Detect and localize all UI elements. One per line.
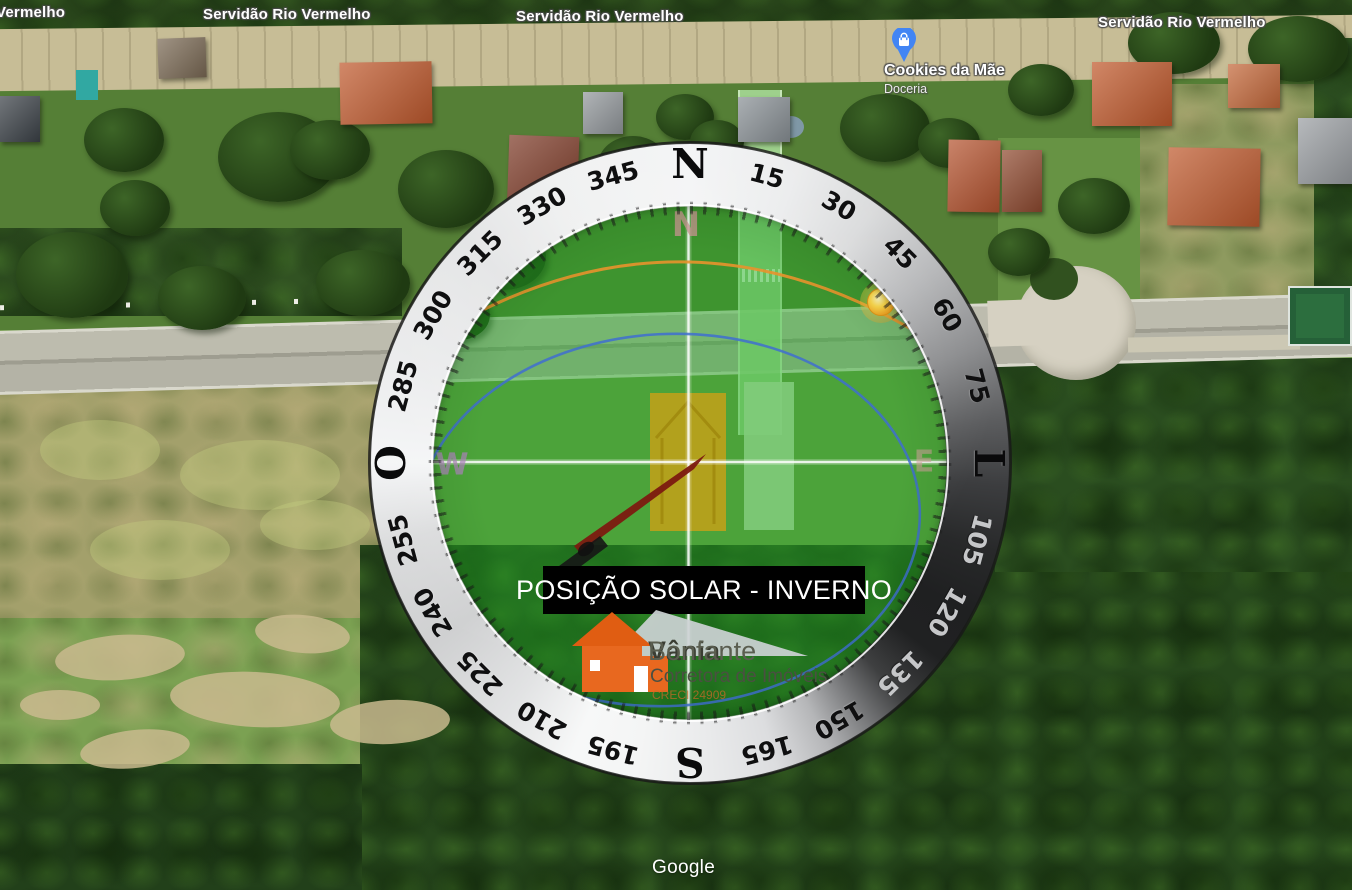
solar-compass-overlay: NWE N1530456075L105120135150165S19521022… bbox=[0, 0, 1352, 890]
logo-surname: Bonfante bbox=[648, 636, 756, 667]
poi-category: Doceria bbox=[884, 82, 927, 96]
logo-license: CRECI 24909 bbox=[652, 688, 726, 702]
poi-name[interactable]: Cookies da Mãe bbox=[884, 62, 1005, 80]
screenshot-root: VermelhoServidão Rio VermelhoServidão Ri… bbox=[0, 0, 1352, 890]
brand-logo: Vânia Bonfante Corretora de Imóveis CREC… bbox=[560, 598, 860, 718]
poi-pin-icon[interactable] bbox=[890, 28, 918, 64]
google-attribution[interactable]: Google bbox=[652, 857, 715, 879]
logo-tagline: Corretora de Imóveis bbox=[650, 666, 827, 688]
poi-cookies-da-mae[interactable]: Cookies da Mãe Doceria bbox=[884, 28, 1024, 98]
